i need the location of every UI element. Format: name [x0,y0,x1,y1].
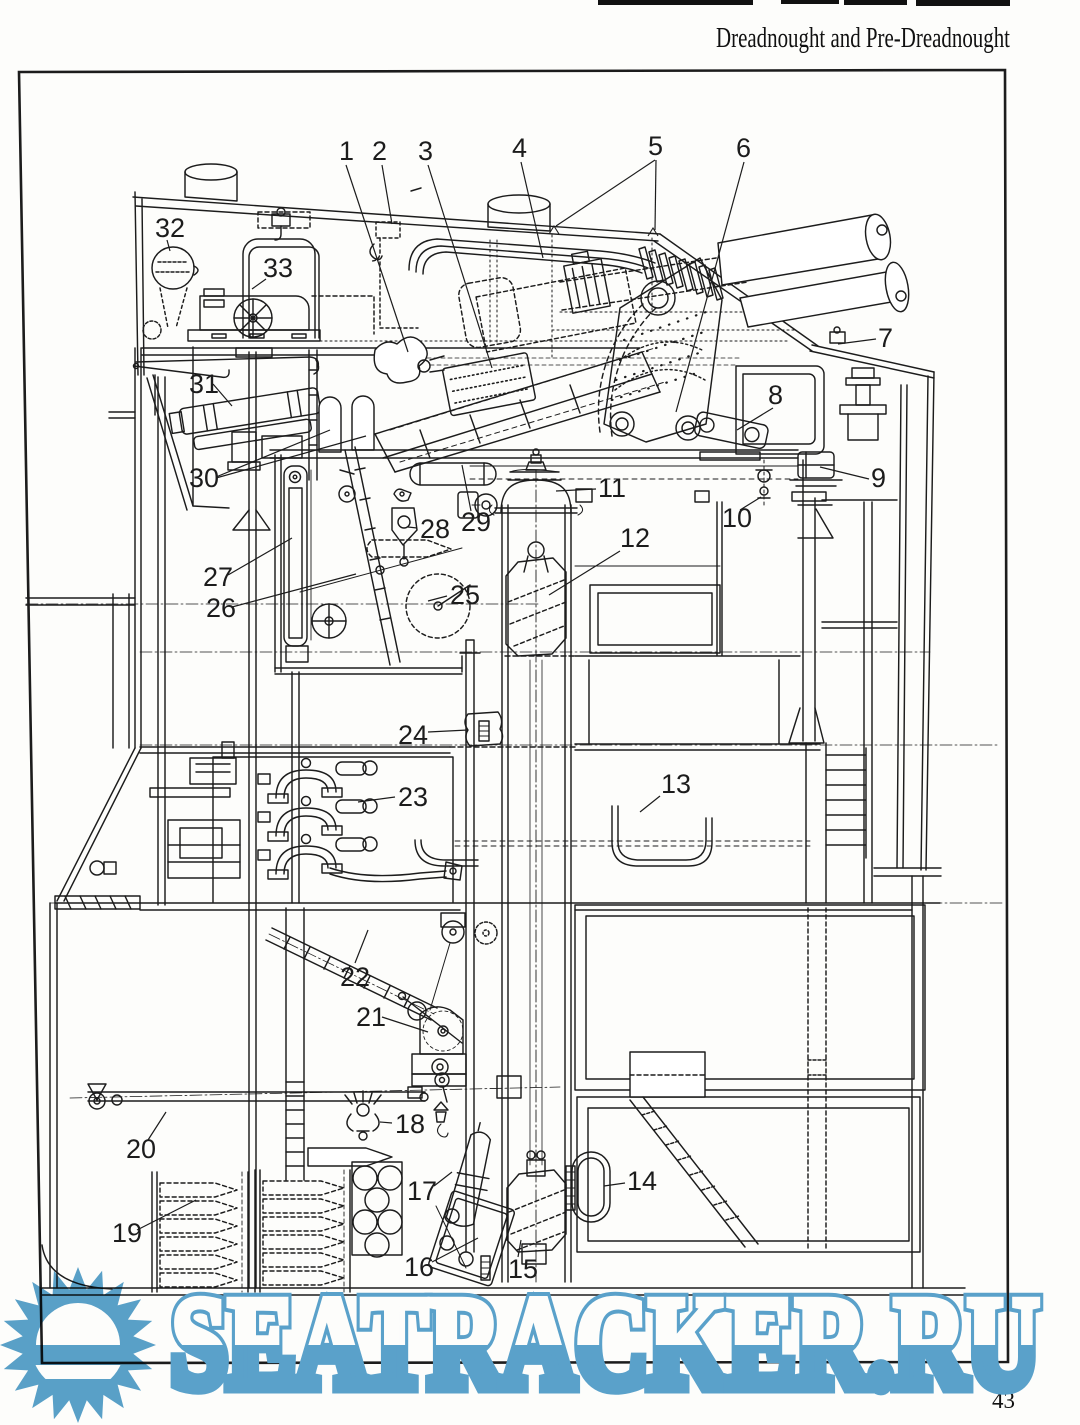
svg-text:27: 27 [203,562,233,592]
svg-text:33: 33 [263,253,293,283]
svg-text:30: 30 [189,463,219,493]
svg-text:29: 29 [461,507,491,537]
svg-text:10: 10 [722,503,752,533]
svg-text:18: 18 [395,1109,425,1139]
svg-text:6: 6 [736,133,751,163]
svg-text:13: 13 [661,769,691,799]
svg-text:2: 2 [372,136,387,166]
svg-text:17: 17 [407,1176,437,1206]
svg-text:23: 23 [398,782,428,812]
svg-text:32: 32 [155,213,185,243]
svg-text:3: 3 [418,136,433,166]
svg-text:1: 1 [339,136,354,166]
svg-text:7: 7 [878,323,893,353]
svg-text:31: 31 [189,369,219,399]
svg-text:26: 26 [206,593,236,623]
svg-text:12: 12 [620,523,650,553]
svg-text:25: 25 [450,580,480,610]
svg-text:19: 19 [112,1218,142,1248]
svg-text:21: 21 [356,1002,386,1032]
svg-text:Dreadnought and Pre-Dreadnough: Dreadnought and Pre-Dreadnought [716,23,1010,54]
svg-text:28: 28 [420,514,450,544]
svg-text:5: 5 [648,131,663,161]
svg-text:4: 4 [512,133,527,163]
svg-text:14: 14 [627,1166,657,1196]
svg-text:24: 24 [398,720,428,750]
svg-text:22: 22 [340,962,370,992]
svg-text:9: 9 [871,463,886,493]
svg-text:8: 8 [768,380,783,410]
svg-text:11: 11 [598,473,626,503]
svg-text:20: 20 [126,1134,156,1164]
